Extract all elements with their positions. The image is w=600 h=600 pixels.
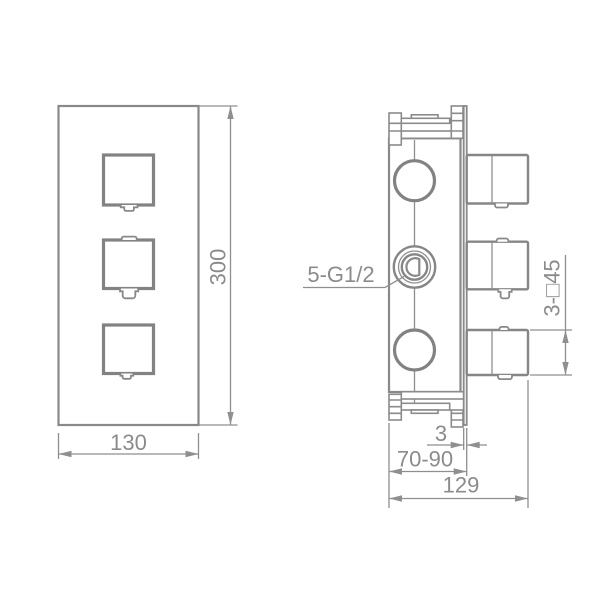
front-handle-square-2 bbox=[104, 240, 154, 289]
thread-spec-label: 5-G1/2 bbox=[307, 262, 374, 287]
arrow-left-icon bbox=[59, 451, 72, 457]
dimension-handle-square: 3-□45 bbox=[530, 255, 572, 375]
handle-2-indicator-tab bbox=[122, 237, 137, 240]
threaded-inlet-port bbox=[394, 246, 435, 287]
plate-thickness-label: 3 bbox=[435, 421, 447, 446]
front-handle-square-3 bbox=[104, 325, 154, 374]
technical-drawing-page: 130 300 bbox=[0, 0, 600, 600]
handle-3-side-bottom-tab bbox=[498, 375, 512, 379]
handle-1-side-tab bbox=[495, 204, 508, 208]
arrow-right-icon bbox=[186, 451, 199, 457]
handle-2-side-override-button bbox=[498, 289, 511, 298]
bottom-mounting-bracket bbox=[389, 392, 465, 427]
height-dimension-label: 300 bbox=[206, 249, 231, 286]
handle-3-side-top-tab bbox=[500, 327, 509, 330]
arrow-up-icon bbox=[562, 330, 568, 343]
front-handle-square-1 bbox=[104, 155, 154, 205]
port-circle-top bbox=[395, 161, 435, 201]
handle-3-indicator-tab bbox=[120, 374, 133, 379]
side-view: 5-G1/2 3-□45 3 70-90 129 bbox=[303, 106, 572, 508]
valve-dimension-drawing: 130 300 bbox=[0, 0, 600, 600]
arrow-down-icon bbox=[227, 412, 233, 425]
arrow-down-icon bbox=[562, 362, 568, 375]
arrow-right-icon bbox=[515, 495, 528, 501]
handle-2-override-button bbox=[120, 289, 138, 299]
dimension-width: 130 bbox=[59, 430, 199, 459]
front-view: 130 300 bbox=[59, 106, 238, 459]
handle-2-side-top-tab bbox=[497, 238, 509, 241]
arrow-left-icon bbox=[467, 442, 480, 448]
arrow-up-icon bbox=[227, 106, 233, 119]
side-handle-2 bbox=[467, 238, 528, 298]
embed-depth-label: 70-90 bbox=[397, 447, 453, 472]
dimension-height: 300 bbox=[199, 106, 238, 425]
handle-square-label: 3-□45 bbox=[540, 259, 565, 316]
overall-depth-label: 129 bbox=[443, 473, 480, 498]
arrow-left-icon bbox=[389, 495, 402, 501]
port-circle-bottom bbox=[395, 330, 435, 370]
side-handle-1 bbox=[467, 155, 528, 208]
width-dimension-label: 130 bbox=[110, 430, 147, 455]
side-handle-3 bbox=[467, 327, 528, 379]
